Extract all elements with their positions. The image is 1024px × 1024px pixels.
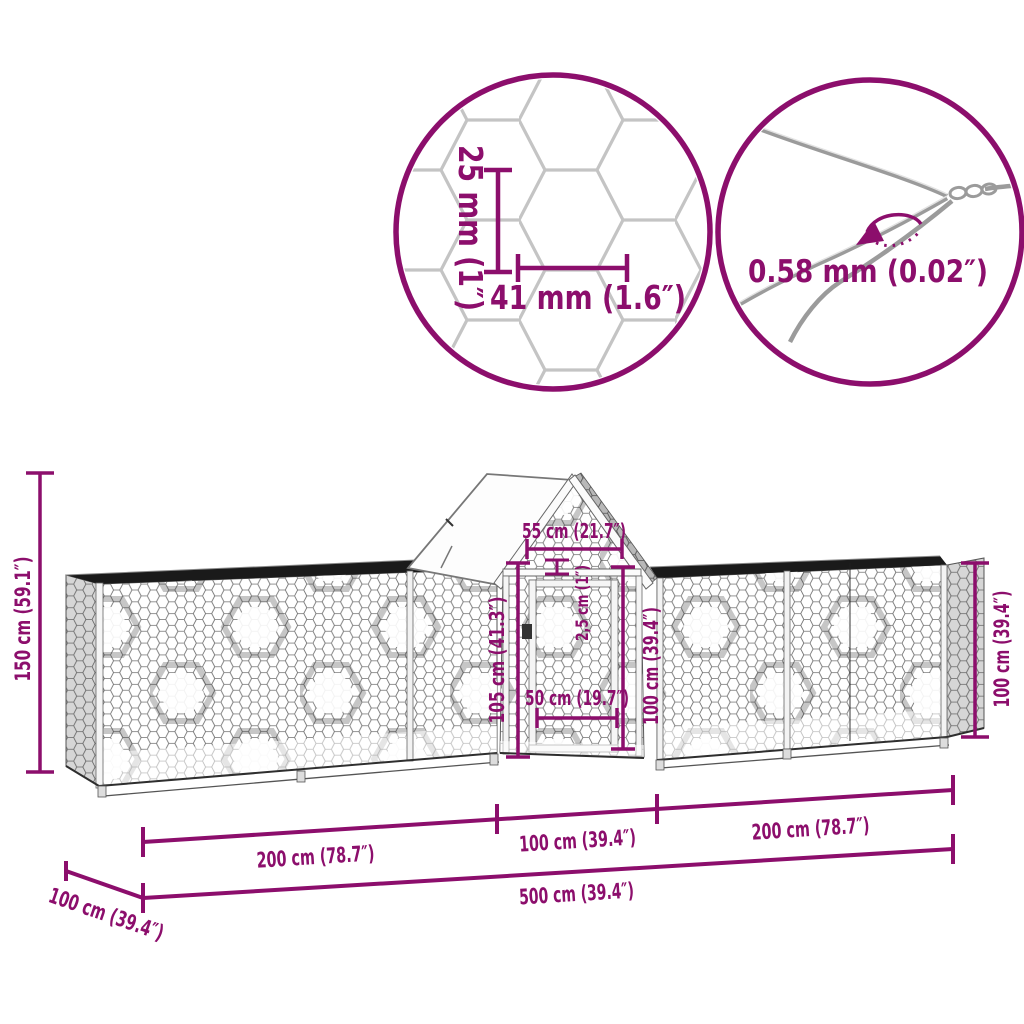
eave-rail bbox=[503, 569, 641, 576]
dim-run-height: 100 cm (39.4″) bbox=[990, 591, 1014, 708]
dim-coop-section-length: 100 cm (39.4″) bbox=[518, 825, 636, 857]
dim-door-width: 50 cm (19.7″) bbox=[525, 686, 629, 710]
mesh-height-label: 25 mm (1″) bbox=[451, 145, 490, 311]
dim-frame-profile: 2,5 cm (1″) bbox=[573, 565, 593, 641]
panel-post bbox=[407, 571, 413, 761]
left-run bbox=[66, 557, 499, 797]
dim-depth: 100 cm (39.4″) bbox=[45, 884, 167, 947]
dim-right-run-length: 200 cm (78.7″) bbox=[751, 813, 870, 845]
corner-post bbox=[941, 565, 947, 737]
dim-door-height: 100 cm (39.4″) bbox=[639, 607, 663, 725]
dim-coop-top-width: 55 cm (21.7″) bbox=[522, 519, 626, 543]
wire-thickness-label: 0.58 mm (0.02″) bbox=[748, 254, 988, 290]
mesh-detail-callout: 25 mm (1″) 41 mm (1.6″) bbox=[396, 75, 716, 391]
dim-total-length: 500 cm (39.4″) bbox=[518, 879, 634, 911]
right-run bbox=[650, 556, 984, 770]
wire-detail-callout: 0.58 mm (0.02″) bbox=[718, 80, 1024, 386]
door-latch bbox=[522, 624, 532, 639]
coop-dimension-diagram: 25 mm (1″) 41 mm (1.6″) bbox=[0, 0, 1024, 1024]
mesh-width-label: 41 mm (1.6″) bbox=[490, 278, 686, 317]
panel-post bbox=[784, 571, 790, 751]
dim-left-run-length: 200 cm (78.7″) bbox=[256, 841, 375, 873]
diagram-stage: 25 mm (1″) 41 mm (1.6″) bbox=[0, 0, 1024, 1024]
dim-overall-height: 150 cm (59.1″) bbox=[11, 557, 36, 682]
corner-post bbox=[96, 583, 103, 788]
dim-coop-front-height: 105 cm (41.3″) bbox=[485, 597, 509, 724]
